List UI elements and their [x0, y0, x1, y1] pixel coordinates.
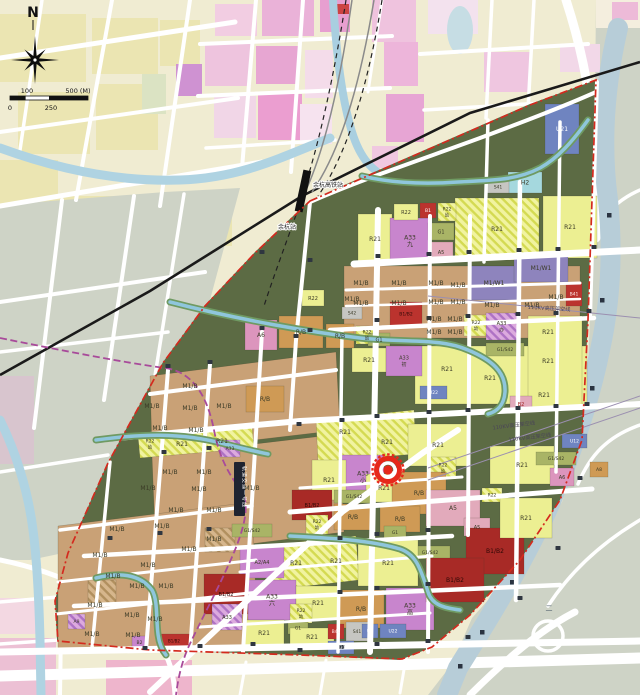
- parcel-label: U31: [336, 645, 345, 651]
- parcel-label: A5: [474, 525, 481, 531]
- map-annotation-text: 余杭站: [278, 223, 296, 231]
- parcel-label: R/B: [356, 606, 366, 613]
- parcel-label: M1/B: [548, 294, 563, 301]
- parcel-label: M1/B: [244, 485, 259, 492]
- parcel-label: R/B: [348, 514, 358, 521]
- parcel-label: M1/B: [87, 602, 102, 609]
- parcel-label: S41: [494, 185, 503, 191]
- parcel-label: A2/A4: [255, 560, 270, 566]
- parcel-label: M1/B: [426, 316, 441, 323]
- parcel-label: M1/B: [447, 329, 462, 336]
- planning-map[interactable]: 轨道交通一号线 R21R21R21A33九R22B1R22幼G1A5H2S41U…: [0, 0, 640, 695]
- parcel-label: M1/B: [158, 583, 173, 590]
- parcel-label: B1/B2: [399, 312, 413, 318]
- parcel-label: M1/B: [391, 300, 406, 307]
- parcel-label: B41: [570, 292, 579, 298]
- parcel-label: M1/B: [344, 296, 359, 303]
- parcel-label: M1/W1: [484, 280, 505, 287]
- parcel-label: A33: [226, 446, 235, 452]
- parcel-label: M1/B: [391, 280, 406, 287]
- parcel-label: M1/B: [140, 562, 155, 569]
- parcel-label: A8: [596, 467, 602, 473]
- parcel-label: M1/W1: [531, 265, 552, 272]
- parcel-label: 二: [546, 604, 553, 612]
- parcel-label: M1/B: [144, 403, 159, 410]
- parcel-label: R21: [491, 226, 503, 233]
- parcel-label: M1/B: [152, 425, 167, 432]
- parcel-label: R/B: [414, 490, 424, 497]
- parcel-label: U22: [429, 390, 438, 396]
- parcel-label: R21: [432, 442, 444, 449]
- parcel-label: R21: [378, 485, 390, 492]
- parcel-label: R21: [339, 429, 351, 436]
- parcel-label: M1/B: [450, 299, 465, 306]
- parcel-label: G1/S42: [422, 550, 439, 556]
- parcel-label: G1: [295, 626, 301, 632]
- parcel-label: M1/B: [154, 523, 169, 530]
- parcel-label: G1: [437, 229, 444, 235]
- parcel-label: R21: [381, 439, 393, 446]
- parcel-label: S42: [348, 311, 357, 317]
- parcel-label: M1/B: [92, 552, 107, 559]
- parcel-label: G1/S42: [548, 456, 565, 462]
- parcel-label: A5: [449, 505, 457, 512]
- map-annotation-text: 余杭高铁站: [313, 181, 343, 189]
- parcel-label: G1: [392, 530, 398, 536]
- parcel-label: R21: [330, 558, 342, 565]
- parcel-label: R21: [312, 600, 324, 607]
- parcel-label: B1/B2: [305, 503, 320, 509]
- parcel-label: U12: [570, 439, 579, 445]
- parcel-label: R21: [520, 515, 532, 522]
- parcel-label: R21: [369, 236, 381, 243]
- parcel-label: M1/B: [124, 612, 139, 619]
- parcel-label: R22: [401, 210, 411, 216]
- parcel-label: A5: [438, 250, 445, 256]
- parcel-label: R21: [542, 358, 554, 365]
- parcel-label: M1/B: [140, 485, 155, 492]
- scale-label-250: 250: [45, 104, 57, 112]
- parcel-label: M1/B: [447, 316, 462, 323]
- parcel-label: R21: [306, 634, 318, 641]
- parcel-label: R21: [290, 560, 302, 567]
- parcel-label: M1/B: [450, 282, 465, 289]
- parcel-label: M1/B: [182, 383, 197, 390]
- parcel-label: R/B: [260, 396, 270, 403]
- parcel-label: M1/B: [162, 469, 177, 476]
- parcel-label: G1/S42: [497, 347, 514, 353]
- scale-label-500: 500 (M): [65, 87, 90, 95]
- parcel-label: M1/B: [353, 280, 368, 287]
- parcel-label: R21: [323, 477, 335, 484]
- zoning-map-svg: 轨道交通一号线 R21R21R21A33九R22B1R22幼G1A5H2S41U…: [0, 0, 640, 695]
- parcel-label: M1/B: [181, 546, 196, 553]
- parcel-label: R21: [564, 224, 576, 231]
- parcel-label: A9: [74, 619, 80, 625]
- parcel-label: R21: [441, 366, 453, 373]
- parcel-label: R/B: [395, 516, 405, 523]
- parcel-label: M1/B: [206, 536, 221, 543]
- parcel-label: M1/B: [105, 573, 120, 580]
- parcel-label: M1/B: [182, 405, 197, 412]
- parcel-label: B2: [518, 402, 525, 408]
- parcel-label: B1: [425, 208, 431, 214]
- parcel-label: A33: [222, 615, 232, 621]
- parcel-label: M1/B: [129, 583, 144, 590]
- parcel-label: B1/B2: [168, 638, 180, 643]
- parcel-label: M1/B: [84, 631, 99, 638]
- parcel-label: R21: [216, 438, 228, 445]
- parcel-label: R21: [258, 630, 270, 637]
- parcel-label: R21: [542, 329, 554, 336]
- parcel-label: B1/B2: [446, 577, 464, 584]
- parcel-label: R22: [308, 296, 318, 302]
- parcel-label: R21: [484, 375, 496, 382]
- parcel-label: A6: [559, 475, 566, 481]
- parcel-label: U9: [367, 629, 373, 635]
- parcel-label: B2: [137, 640, 143, 646]
- parcel-label: R21: [516, 462, 528, 469]
- parcel-label: U21: [556, 126, 568, 133]
- parcel-label: R22: [488, 493, 497, 499]
- parcel: [528, 316, 582, 408]
- parcel-label: M1/B: [109, 526, 124, 533]
- scale-label-100: 100: [21, 87, 33, 95]
- parcel-label: B41: [332, 629, 341, 635]
- parcel-label: R21: [382, 560, 394, 567]
- parcel-label: R21: [538, 392, 550, 399]
- parcel-label: M1/B: [206, 507, 221, 514]
- parcel-label: R21: [176, 441, 188, 448]
- parcel-label: G1/S42: [346, 494, 363, 500]
- parcel-label: H2: [521, 180, 530, 187]
- parcel-label: R/B: [296, 329, 306, 336]
- parcel-label: R/B: [335, 333, 345, 340]
- parcel-label: M1/B: [196, 469, 211, 476]
- parcel-label: M1/B: [188, 427, 203, 434]
- parcel-label: M1/B: [216, 403, 231, 410]
- parcel-label: M1/B: [168, 507, 183, 514]
- parcel-label: S41: [353, 629, 362, 635]
- parcel-label: M1/B: [147, 616, 162, 623]
- parcel-label: B1/B2: [486, 548, 504, 555]
- parcel-label: M1/B: [426, 329, 441, 336]
- parcel-label: R21: [363, 357, 375, 364]
- scale-label-0: 0: [8, 104, 12, 112]
- parcel-label: M1/B: [428, 280, 443, 287]
- parcel-label: A6: [257, 332, 265, 339]
- parcel-label: B1/B2: [219, 592, 234, 598]
- parcel-label: G1: [375, 337, 382, 343]
- parcel-label: M1/B: [125, 632, 140, 639]
- parcel-label: M1/B: [191, 486, 206, 493]
- compass-north-label: N: [27, 5, 39, 21]
- parcel-label: M1/B: [484, 302, 499, 309]
- parcel-label: U22: [388, 629, 397, 635]
- parcel-label: M1/B: [428, 299, 443, 306]
- parcel-label: G1/S42: [244, 528, 261, 534]
